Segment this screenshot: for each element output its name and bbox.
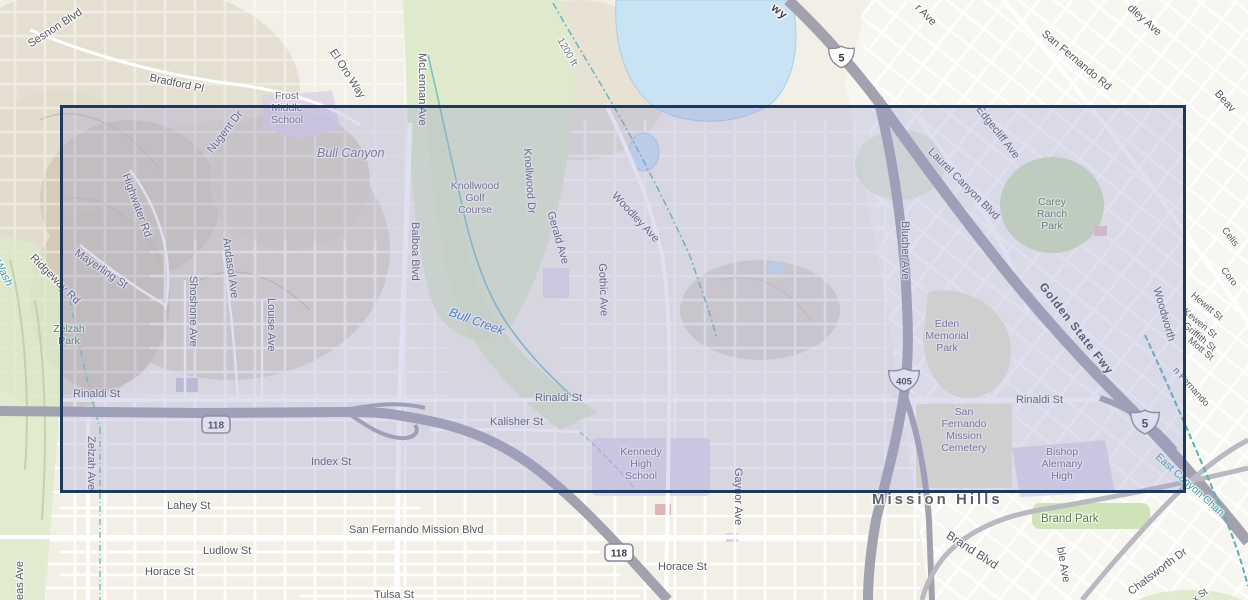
- map-viewport[interactable]: 5 5 405 118 118 Sesnon Blvd Bradford Pl …: [0, 0, 1248, 600]
- selection-extent-rectangle[interactable]: [60, 105, 1186, 493]
